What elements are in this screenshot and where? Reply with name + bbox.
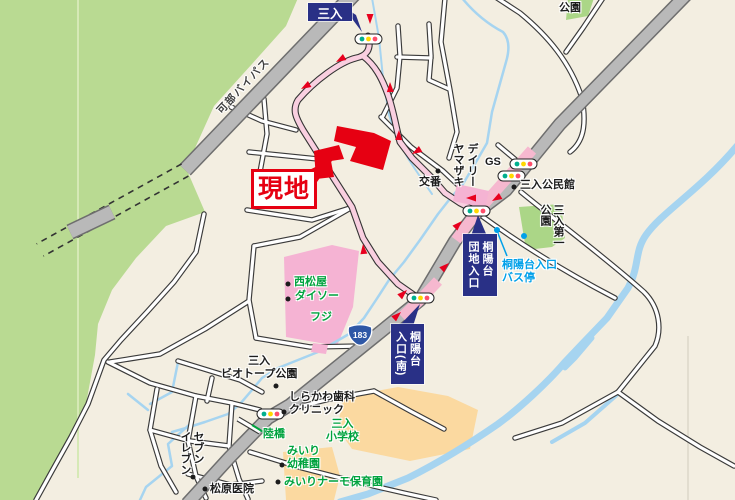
map-graphics: 183	[0, 0, 735, 500]
signal-danchi-entrance	[463, 206, 490, 216]
bus-stop-mark	[521, 233, 527, 239]
kindergarten-label: みいり 幼稚園	[287, 445, 320, 471]
signal-shirakawa	[257, 409, 284, 419]
seven-eleven-label: セブン イレブン	[178, 431, 204, 475]
daily-yamazaki-label: デイリー ヤマザキ	[451, 143, 479, 187]
park-top-label: 公園	[559, 2, 581, 15]
minami-entrance-label: 桐陽台 入口(南)	[391, 324, 424, 384]
police-box-label: 交番	[419, 176, 441, 189]
route-183-number: 183	[353, 330, 367, 340]
overpass-label: 陸橋	[263, 428, 285, 441]
signal-minami-entrance	[407, 293, 434, 303]
danchi-entrance-text: 桐陽台 団地入口	[466, 241, 494, 289]
signal-miiri	[355, 34, 382, 44]
minami-entrance-text: 桐陽台 入口(南)	[394, 331, 422, 376]
signal-kominkan-north	[510, 159, 537, 169]
elementary-school-label: 三入 小学校	[326, 418, 359, 444]
park-first-label: 三入第一 公園	[538, 204, 564, 248]
miiri-intersection-text: 三入	[317, 3, 342, 22]
community-center-label: 三入公民館	[520, 179, 575, 192]
shirakawa-dental-label: しらかわ歯科 クリニック	[289, 391, 355, 417]
biotope-park-label: 三入 ビオトープ公園	[221, 355, 297, 381]
nursery-label: みいりナーモ保育園	[284, 476, 383, 489]
gas-station-label: GS	[485, 156, 501, 169]
site-building-main	[334, 126, 391, 170]
miiri-intersection-label: 三入	[308, 3, 352, 21]
fuji-label: フジ	[310, 311, 332, 324]
daiso-label: ダイソー	[295, 290, 339, 303]
danchi-entrance-label: 桐陽台 団地入口	[463, 234, 497, 296]
site-callout-text: 現地	[258, 177, 310, 202]
bus-stop-mark	[494, 227, 500, 233]
map-canvas[interactable]: 183 三入 可部バイパス 現地 交番 デイリー ヤマザキ GS 三入公民館 公…	[0, 0, 735, 500]
nishimatsuya-label: 西松屋	[294, 276, 327, 289]
site-callout: 現地	[251, 169, 317, 209]
matsubara-clinic-label: 松原医院	[210, 483, 254, 496]
bus-stop-label: 桐陽台入口 バス停	[502, 259, 557, 285]
